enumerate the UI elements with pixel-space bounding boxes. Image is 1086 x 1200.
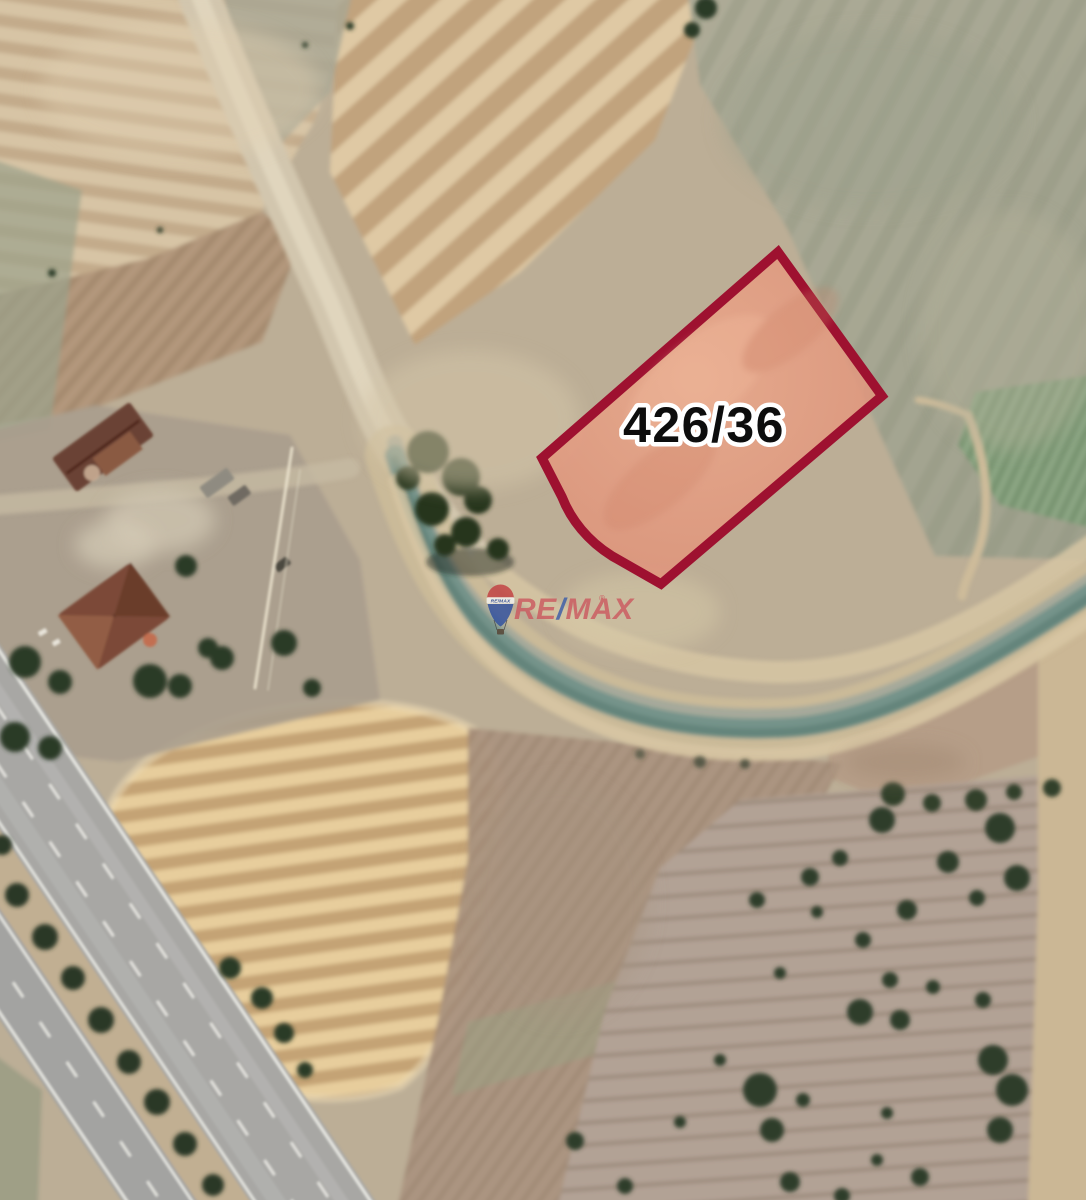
- remax-wordmark: RE/MAX: [514, 593, 635, 626]
- parcel-label: 426/36: [623, 397, 785, 453]
- balloon-text: RE/MAX: [491, 599, 511, 605]
- map-canvas: 426/36 RE/MAX RE/MAX ®: [0, 0, 1086, 1200]
- roof-patch: [143, 633, 157, 647]
- registered-mark: ®: [599, 594, 605, 603]
- satellite-map: 426/36 RE/MAX RE/MAX ®: [0, 0, 1086, 1200]
